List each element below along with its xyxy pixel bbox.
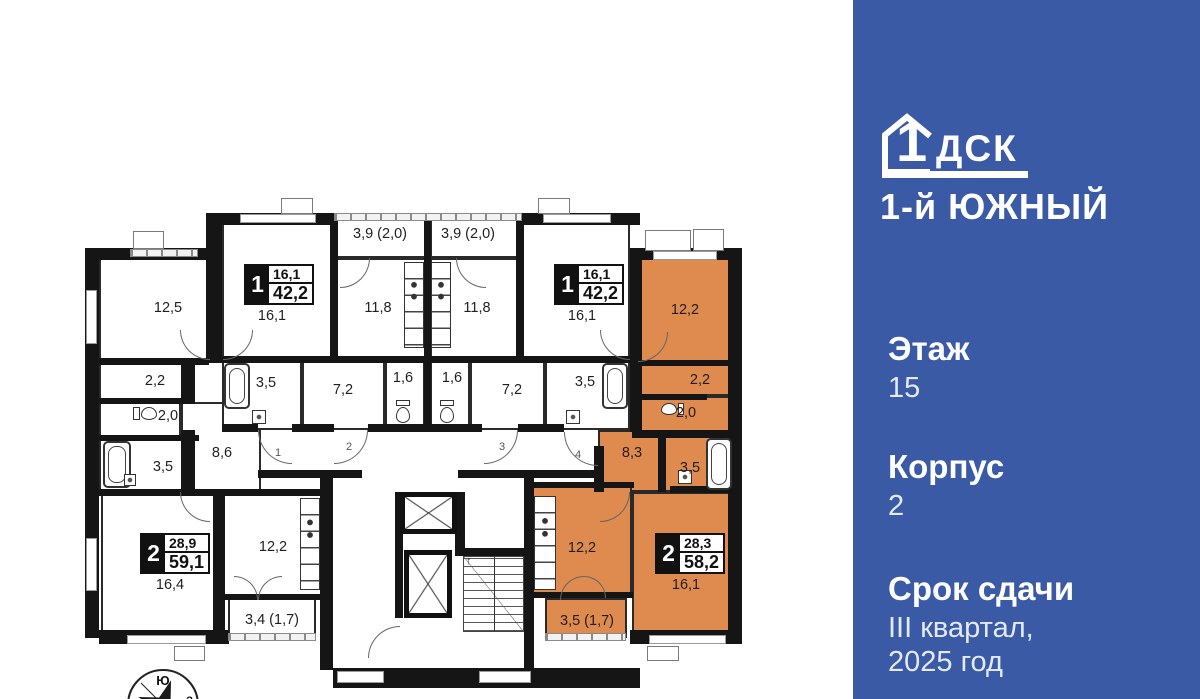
room-label: 3,5 [680,460,700,476]
toilet [133,407,140,420]
toilet [141,407,157,420]
bathtub [602,363,628,409]
entrance-number: 2 [346,441,352,453]
kitchen-appliances [300,498,320,590]
room-label: 7,2 [333,382,353,398]
sink [566,410,580,424]
toilet [396,400,410,406]
project-name: 1-й ЮЖНЫЙ [880,186,1109,228]
kitchen-appliances [534,496,556,590]
total-area: 42,2 [269,284,312,303]
developer-logo: 1 ДСК [880,110,1170,182]
window [86,290,97,344]
bathtub [224,363,250,409]
room-label: 3,5 (1,7) [560,613,614,629]
balcony-railing [334,213,522,221]
room-label: 16,1 [258,308,286,324]
vent-shaft [133,231,164,249]
total-area: 42,2 [579,284,622,303]
window [649,635,726,644]
room-label: 7,2 [502,382,522,398]
toilet [440,407,454,423]
entrance-number: 3 [499,441,505,453]
sink [252,410,266,424]
rooms-count: 1 [246,266,269,303]
window [127,635,206,644]
balcony-railing [545,633,626,641]
room-label: 16,1 [672,577,700,593]
french-balcony [645,230,691,251]
listing-card: ↑ 12,5 2,2 2,0 3,5 8,6 16,4 12,2 3,4 (1,… [0,0,1200,699]
room-label: 3,9 (2,0) [441,226,495,242]
window [479,671,531,683]
deadline-year: 2025 год [888,646,1003,679]
vent-shaft [693,229,724,251]
apartment-badge-1room-right: 1 16,1 42,2 [554,264,624,305]
living-area: 28,3 [680,535,723,553]
rooms-count: 1 [556,266,579,303]
common-corridor [258,430,598,472]
toilet [661,403,677,415]
room-label: 11,8 [463,300,490,316]
room-label: 3,5 [575,374,595,390]
window [543,214,611,223]
apartment-badge-1room-left: 1 16,1 42,2 [244,264,314,305]
building-label: Корпус [888,448,1004,486]
room-label: 12,2 [568,540,596,556]
floor-value: 15 [888,372,920,405]
room-label: 3,5 [153,459,173,475]
living-area: 16,1 [269,266,312,284]
room-label: 8,3 [622,445,642,461]
living-area: 16,1 [579,266,622,284]
entrance-number: 4 [575,449,581,461]
compass-needle-icon [129,671,197,699]
window [240,214,316,223]
kitchen-appliances [404,262,424,348]
room-label: 12,2 [259,539,287,555]
deadline-label: Срок сдачи [888,570,1074,608]
room-label: 2,0 [158,408,178,424]
vent-shaft [538,198,570,214]
balcony-railing [228,633,316,641]
toilet [440,400,454,406]
info-panel: 1 ДСК 1-й ЮЖНЫЙ Этаж 15 Корпус 2 Срок сд… [853,0,1200,699]
stairs-up-arrow: ↑ [466,555,472,567]
room-label: 1,6 [393,370,413,386]
elevator [400,492,457,534]
room-label: 2,2 [145,373,165,389]
compass-rose: Ю З [127,669,199,699]
room-label: 3,9 (2,0) [353,226,407,242]
logo-underline [882,171,1028,178]
room-label: 12,2 [671,302,699,318]
room-label: 12,5 [154,300,182,316]
staircase: ↑ [463,556,524,632]
apartment-badge-2room-left: 2 28,9 59,1 [140,533,210,574]
window [86,538,97,591]
vent-shaft [647,646,679,661]
entrance-number: 1 [275,447,281,459]
vent-shaft [281,198,313,214]
room-label: 3,4 (1,7) [245,612,299,628]
room-label: 11,8 [364,300,391,316]
bathtub [706,438,732,490]
floor-plan: ↑ 12,5 2,2 2,0 3,5 8,6 16,4 12,2 3,4 (1,… [0,0,853,699]
living-area: 28,9 [165,535,208,553]
room-label: 8,6 [212,445,232,461]
room-label: 2,0 [676,405,696,421]
rooms-count: 2 [657,535,680,572]
room-label: 16,1 [568,308,596,324]
vent-shaft [174,646,205,661]
room-label: 16,4 [156,577,184,593]
logo-letters: ДСК [936,128,1018,170]
total-area: 59,1 [165,553,208,572]
floor-label: Этаж [888,330,969,368]
deadline-quarter: III квартал, [888,612,1034,645]
apartment-badge-2room-right: 2 28,3 58,2 [655,533,725,574]
window [653,251,717,260]
total-area: 58,2 [680,553,723,572]
room-label: 2,2 [690,372,710,388]
logo-number: 1 [896,112,927,172]
balcony-railing [130,249,198,257]
window [337,671,384,683]
room-label: 3,5 [256,375,276,391]
kitchen-appliances [431,262,451,348]
rooms-count: 2 [142,535,165,572]
elevator [404,550,452,618]
room-wardrobe-2-2-orange [632,362,734,396]
sink [124,474,136,486]
toilet [396,407,410,423]
room-label: 1,6 [442,370,462,386]
building-value: 2 [888,490,904,523]
